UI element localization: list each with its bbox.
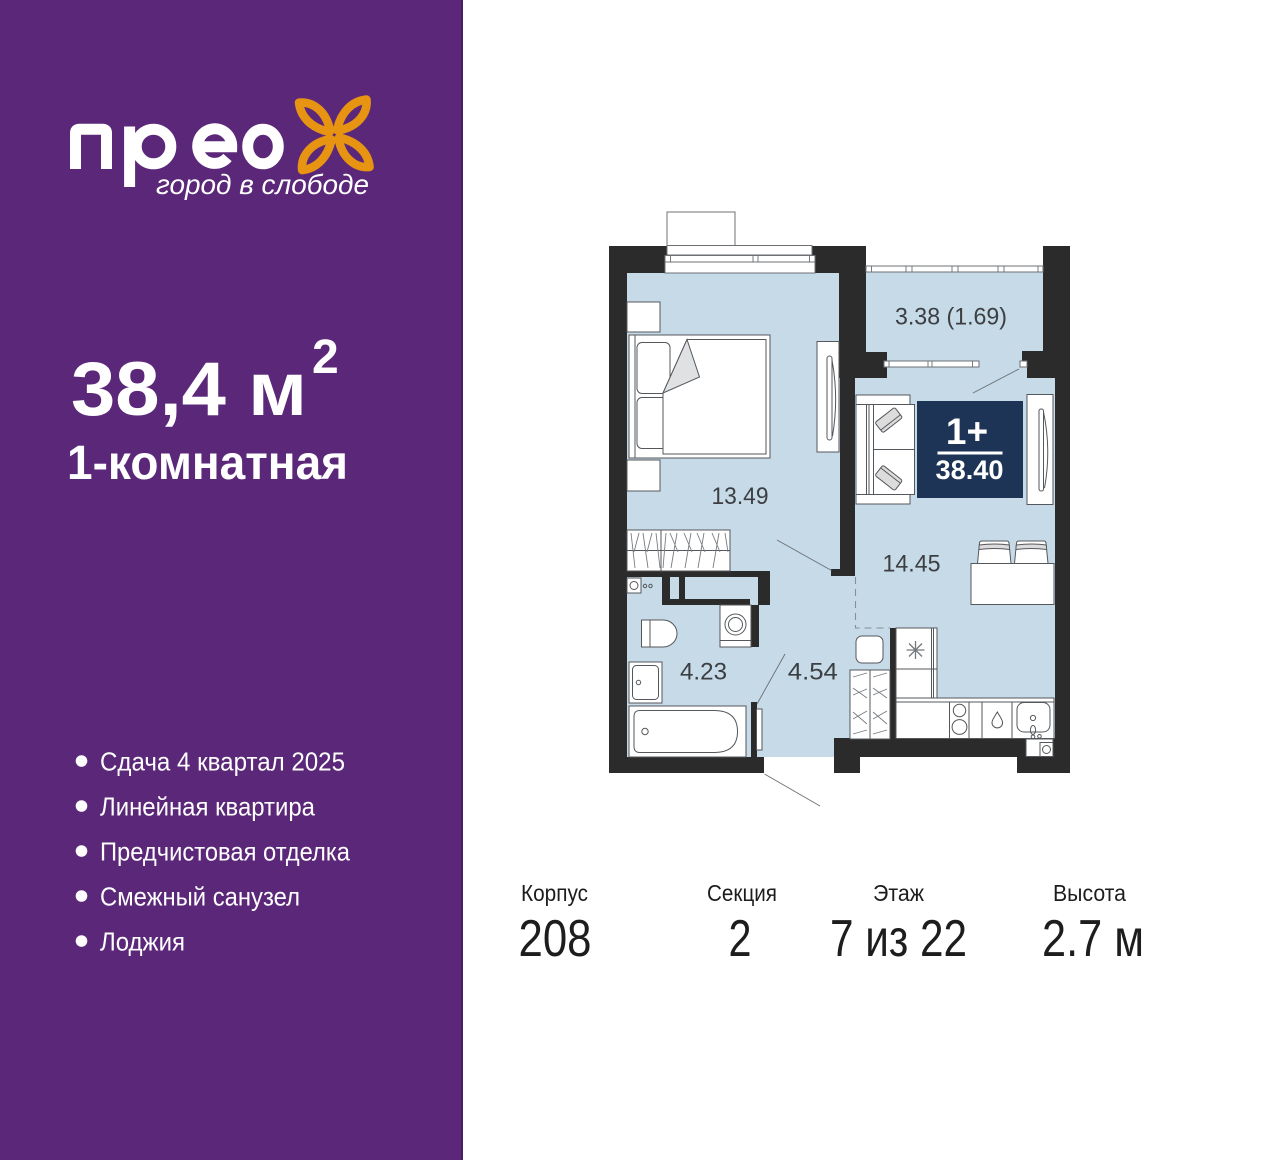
svg-text:1+: 1+: [946, 411, 988, 452]
svg-text:2.7 м: 2.7 м: [1042, 910, 1144, 968]
svg-text:1-комнатная: 1-комнатная: [67, 437, 348, 490]
svg-text:3.38 (1.69): 3.38 (1.69): [895, 304, 1007, 331]
svg-text:Корпус: Корпус: [521, 880, 588, 906]
svg-text:Лоджия: Лоджия: [100, 927, 185, 957]
svg-text:14.45: 14.45: [883, 551, 941, 578]
svg-text:4.54: 4.54: [788, 659, 838, 686]
svg-text:7 из 22: 7 из 22: [830, 910, 967, 968]
svg-text:Этаж: Этаж: [873, 880, 925, 906]
svg-text:2: 2: [729, 910, 752, 968]
svg-text:Сдача 4 квартал 2025: Сдача 4 квартал 2025: [100, 747, 345, 777]
svg-text:208: 208: [519, 910, 592, 968]
svg-text:Линейная квартира: Линейная квартира: [100, 792, 315, 822]
svg-text:город в слободе: город в слободе: [156, 169, 369, 200]
svg-text:2: 2: [312, 331, 339, 384]
svg-text:Секция: Секция: [707, 880, 777, 906]
svg-text:13.49: 13.49: [712, 483, 769, 510]
svg-text:Предчистовая отделка: Предчистовая отделка: [100, 837, 350, 867]
svg-text:38,4 м: 38,4 м: [71, 347, 307, 432]
svg-text:Высота: Высота: [1053, 880, 1126, 906]
svg-text:38.40: 38.40: [936, 455, 1004, 485]
svg-text:Смежный санузел: Смежный санузел: [100, 882, 300, 912]
svg-text:4.23: 4.23: [680, 659, 727, 686]
